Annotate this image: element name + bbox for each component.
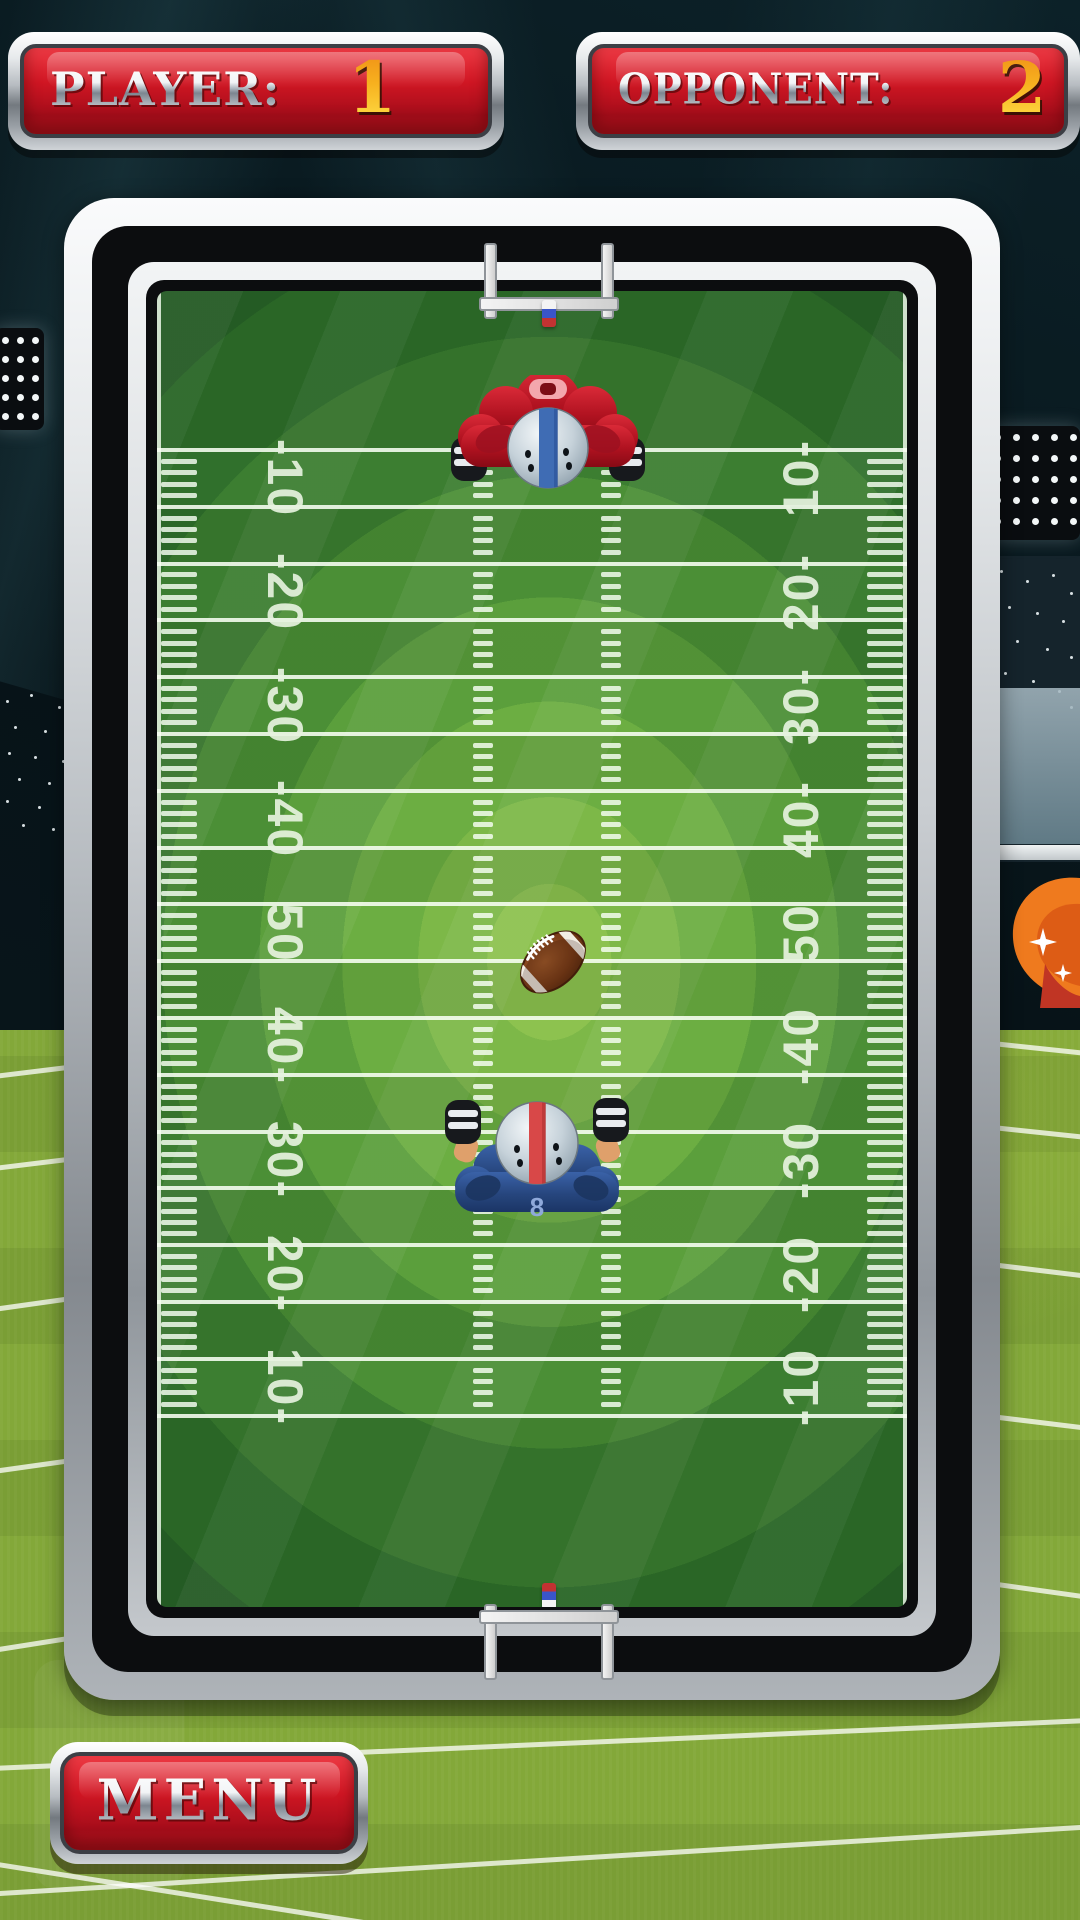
hash-mark xyxy=(867,595,903,600)
opponent-player-red xyxy=(443,375,653,507)
hash-mark xyxy=(161,697,197,702)
menu-button-label: MENU xyxy=(97,1767,322,1833)
hash-mark xyxy=(867,811,903,816)
yard-number-left: 50 xyxy=(256,903,314,963)
hash-mark xyxy=(867,1277,903,1282)
hash-mark xyxy=(601,516,621,521)
hash-mark xyxy=(473,1277,493,1282)
hash-mark xyxy=(867,936,903,941)
hash-mark xyxy=(473,1050,493,1055)
yard-number-left: -20 xyxy=(256,553,314,631)
hash-mark xyxy=(867,538,903,543)
player-label: PLAYER: xyxy=(50,62,280,116)
hash-mark xyxy=(473,834,493,839)
hash-mark xyxy=(473,1038,493,1043)
hash-mark xyxy=(161,686,197,691)
hash-mark xyxy=(601,981,621,986)
hash-mark xyxy=(161,1368,197,1373)
yard-number-left: -30 xyxy=(256,666,314,744)
hash-mark xyxy=(473,1334,493,1339)
hash-mark xyxy=(867,697,903,702)
hash-mark xyxy=(473,777,493,782)
hash-mark xyxy=(473,800,493,805)
hash-mark xyxy=(473,584,493,589)
hash-mark xyxy=(867,1368,903,1373)
hash-mark xyxy=(161,1231,197,1236)
hash-mark xyxy=(473,527,493,532)
hash-mark xyxy=(867,493,903,498)
player-score: 1 xyxy=(348,46,397,129)
hash-mark xyxy=(473,1379,493,1384)
hash-mark xyxy=(601,550,621,555)
hash-mark xyxy=(601,1288,621,1293)
hash-mark xyxy=(601,1231,621,1236)
hash-mark xyxy=(867,1311,903,1316)
yard-number-right: -30 xyxy=(772,1121,830,1199)
hash-mark xyxy=(161,550,197,555)
hash-mark xyxy=(161,1379,197,1384)
hash-mark xyxy=(473,1004,493,1009)
hash-mark xyxy=(601,1334,621,1339)
hash-mark xyxy=(601,1084,621,1089)
hash-mark xyxy=(473,766,493,771)
hash-mark xyxy=(601,538,621,543)
hash-mark xyxy=(161,607,197,612)
hash-mark xyxy=(161,993,197,998)
hash-mark xyxy=(867,470,903,475)
hash-mark xyxy=(161,572,197,577)
hash-mark xyxy=(867,1334,903,1339)
hash-mark xyxy=(473,936,493,941)
hash-mark xyxy=(473,538,493,543)
hash-mark xyxy=(161,947,197,952)
hash-mark xyxy=(867,981,903,986)
hash-mark xyxy=(867,1163,903,1168)
hash-mark xyxy=(867,1061,903,1066)
hash-mark xyxy=(473,981,493,986)
hash-mark xyxy=(473,822,493,827)
hash-mark xyxy=(473,709,493,714)
hash-mark xyxy=(161,720,197,725)
hash-mark xyxy=(161,1345,197,1350)
hash-mark xyxy=(473,913,493,918)
hash-mark xyxy=(867,663,903,668)
goal-pylon-bottom xyxy=(542,1583,556,1607)
glove-icon xyxy=(445,1100,481,1144)
hash-mark xyxy=(601,800,621,805)
yard-number-right: 20- xyxy=(772,553,830,631)
hash-mark xyxy=(867,1004,903,1009)
hash-mark xyxy=(161,1163,197,1168)
hash-mark xyxy=(867,641,903,646)
hash-mark xyxy=(601,1322,621,1327)
hash-mark xyxy=(867,879,903,884)
hash-mark xyxy=(601,663,621,668)
yard-number-left: 20- xyxy=(256,1234,314,1312)
hash-mark xyxy=(601,913,621,918)
jersey-number: 8 xyxy=(530,1192,544,1222)
hash-mark xyxy=(601,1004,621,1009)
hash-mark xyxy=(473,868,493,873)
hash-mark xyxy=(601,572,621,577)
hash-mark xyxy=(601,1390,621,1395)
hash-mark xyxy=(473,595,493,600)
hash-mark xyxy=(161,868,197,873)
hash-mark xyxy=(867,584,903,589)
hash-mark xyxy=(867,777,903,782)
opponent-score-panel: OPPONENT: 2 xyxy=(576,32,1080,150)
hash-mark xyxy=(473,1368,493,1373)
hash-mark xyxy=(867,1231,903,1236)
hash-mark xyxy=(473,1084,493,1089)
hash-mark xyxy=(867,1152,903,1157)
hash-mark xyxy=(161,1175,197,1180)
goal-pylon-top xyxy=(542,300,556,327)
hash-mark xyxy=(601,641,621,646)
hash-mark xyxy=(601,1027,621,1032)
hash-mark xyxy=(867,754,903,759)
hash-mark xyxy=(867,925,903,930)
hash-mark xyxy=(161,970,197,975)
hash-mark xyxy=(867,1084,903,1089)
hash-mark xyxy=(161,913,197,918)
hash-mark xyxy=(601,925,621,930)
hash-mark xyxy=(473,1311,493,1316)
hash-mark xyxy=(161,493,197,498)
hash-mark xyxy=(161,1118,197,1123)
hash-mark xyxy=(473,641,493,646)
yard-number-left: -10 xyxy=(256,439,314,517)
hash-mark xyxy=(867,1265,903,1270)
football-icon xyxy=(503,914,603,1010)
hash-mark xyxy=(161,1322,197,1327)
menu-button-core: MENU xyxy=(60,1752,358,1854)
hash-mark xyxy=(161,1311,197,1316)
hash-mark xyxy=(867,550,903,555)
hash-mark xyxy=(601,607,621,612)
hash-mark xyxy=(161,1140,197,1145)
hash-mark xyxy=(867,1175,903,1180)
hash-mark xyxy=(161,754,197,759)
hash-mark xyxy=(161,641,197,646)
hash-mark xyxy=(601,891,621,896)
player-score-panel: PLAYER: 1 xyxy=(8,32,504,150)
hash-mark xyxy=(161,936,197,941)
hash-mark xyxy=(601,1254,621,1259)
football-field[interactable]: -10-20-30-405040-30-20-10-10-20-30-40-50… xyxy=(157,291,907,1607)
hash-mark xyxy=(473,754,493,759)
hash-mark xyxy=(867,1095,903,1100)
yard-number-left: -40 xyxy=(256,780,314,858)
hash-mark xyxy=(473,947,493,952)
hash-mark xyxy=(161,1265,197,1270)
hash-mark xyxy=(161,652,197,657)
hash-mark xyxy=(601,697,621,702)
hash-mark xyxy=(161,1004,197,1009)
hash-mark xyxy=(867,572,903,577)
yard-number-right: -10 xyxy=(772,1348,830,1426)
hash-mark xyxy=(601,811,621,816)
hash-mark xyxy=(867,891,903,896)
hash-mark xyxy=(867,834,903,839)
hash-mark xyxy=(473,652,493,657)
hash-mark xyxy=(601,766,621,771)
hash-mark xyxy=(867,1345,903,1350)
hash-mark xyxy=(601,1265,621,1270)
hash-mark xyxy=(867,800,903,805)
hash-mark xyxy=(867,1140,903,1145)
hash-mark xyxy=(473,1288,493,1293)
hash-mark xyxy=(473,516,493,521)
hash-mark xyxy=(473,697,493,702)
hash-mark xyxy=(867,993,903,998)
hash-mark xyxy=(867,1322,903,1327)
hash-mark xyxy=(473,891,493,896)
hash-mark xyxy=(601,1379,621,1384)
crowd-flashes xyxy=(6,700,9,703)
hash-mark xyxy=(473,1322,493,1327)
hash-mark xyxy=(161,584,197,589)
hash-mark xyxy=(161,1390,197,1395)
hash-mark xyxy=(161,538,197,543)
hash-mark xyxy=(161,516,197,521)
hash-mark xyxy=(473,1265,493,1270)
hash-mark xyxy=(867,1106,903,1111)
hash-mark xyxy=(473,686,493,691)
hash-mark xyxy=(867,1197,903,1202)
hash-mark xyxy=(161,743,197,748)
hash-mark xyxy=(473,1231,493,1236)
hash-mark xyxy=(867,1209,903,1214)
hash-mark xyxy=(867,459,903,464)
hash-mark xyxy=(601,879,621,884)
hash-mark xyxy=(601,1345,621,1350)
hash-mark xyxy=(473,550,493,555)
hash-mark xyxy=(601,936,621,941)
hash-mark xyxy=(473,1254,493,1259)
hash-mark xyxy=(867,1402,903,1407)
hash-mark xyxy=(473,970,493,975)
hash-mark xyxy=(473,743,493,748)
hash-mark xyxy=(161,1038,197,1043)
floodlight-panel-icon xyxy=(0,328,44,430)
hash-mark xyxy=(161,856,197,861)
hash-mark xyxy=(161,1152,197,1157)
hash-mark xyxy=(601,834,621,839)
hash-mark xyxy=(867,1038,903,1043)
opponent-score-panel-core: OPPONENT: 2 xyxy=(588,44,1068,138)
hash-mark xyxy=(867,686,903,691)
hash-mark xyxy=(161,1277,197,1282)
hash-mark xyxy=(867,1288,903,1293)
hash-mark xyxy=(161,709,197,714)
yard-number-right: 10- xyxy=(772,439,830,517)
hash-mark xyxy=(601,947,621,952)
hash-mark xyxy=(867,1379,903,1384)
hash-mark xyxy=(867,868,903,873)
hash-mark xyxy=(473,1027,493,1032)
hash-mark xyxy=(473,879,493,884)
hash-mark xyxy=(161,1197,197,1202)
player-score-panel-core: PLAYER: 1 xyxy=(20,44,492,138)
hash-mark xyxy=(161,470,197,475)
hash-mark xyxy=(601,993,621,998)
hash-mark xyxy=(161,459,197,464)
playfield-frame: -10-20-30-405040-30-20-10-10-20-30-40-50… xyxy=(64,198,1000,1700)
game-screen: -10-20-30-405040-30-20-10-10-20-30-40-50… xyxy=(0,0,1080,1920)
hash-mark xyxy=(473,811,493,816)
hash-mark xyxy=(473,720,493,725)
hash-mark xyxy=(601,720,621,725)
hash-mark xyxy=(867,947,903,952)
hash-mark xyxy=(161,1220,197,1225)
hash-mark xyxy=(161,879,197,884)
hash-mark xyxy=(867,629,903,634)
hash-mark xyxy=(473,1390,493,1395)
hash-mark xyxy=(867,1390,903,1395)
hash-mark xyxy=(601,595,621,600)
hash-mark xyxy=(161,1334,197,1339)
hash-mark xyxy=(601,1050,621,1055)
hash-mark xyxy=(601,686,621,691)
hash-mark xyxy=(867,1027,903,1032)
stadium-window xyxy=(1000,688,1080,844)
hash-mark xyxy=(161,482,197,487)
hash-mark xyxy=(601,868,621,873)
yard-number-right: 40- xyxy=(772,780,830,858)
hash-mark xyxy=(601,1038,621,1043)
player-blue[interactable]: 8 xyxy=(437,1092,637,1222)
hash-mark xyxy=(867,607,903,612)
hash-mark xyxy=(161,811,197,816)
hash-mark xyxy=(601,652,621,657)
hash-mark xyxy=(867,720,903,725)
hash-mark xyxy=(601,1311,621,1316)
hash-mark xyxy=(867,1254,903,1259)
hash-mark xyxy=(161,1061,197,1066)
yard-number-left: 30- xyxy=(256,1121,314,1199)
hash-mark xyxy=(161,1106,197,1111)
hash-mark xyxy=(601,1402,621,1407)
hash-mark xyxy=(867,709,903,714)
hash-mark xyxy=(473,1402,493,1407)
hash-mark xyxy=(867,1220,903,1225)
floodlight-panel-icon xyxy=(986,426,1080,540)
hash-mark xyxy=(161,1402,197,1407)
hash-mark xyxy=(473,925,493,930)
hash-mark xyxy=(473,629,493,634)
hash-mark xyxy=(161,834,197,839)
hash-mark xyxy=(601,970,621,975)
crowd-flashes xyxy=(1000,570,1003,573)
hash-mark xyxy=(473,663,493,668)
hash-mark xyxy=(161,800,197,805)
hash-mark xyxy=(161,766,197,771)
hash-mark xyxy=(161,629,197,634)
menu-button[interactable]: MENU xyxy=(50,1742,368,1864)
hash-mark xyxy=(601,822,621,827)
hash-mark xyxy=(867,743,903,748)
opponent-label: OPPONENT: xyxy=(618,65,893,114)
hash-mark xyxy=(161,1027,197,1032)
hash-mark xyxy=(867,1118,903,1123)
hash-mark xyxy=(601,777,621,782)
hash-mark xyxy=(601,754,621,759)
hash-mark xyxy=(867,822,903,827)
hash-mark xyxy=(161,527,197,532)
hash-mark xyxy=(161,777,197,782)
yard-number-right: 30- xyxy=(772,666,830,744)
hash-mark xyxy=(473,993,493,998)
opponent-score: 2 xyxy=(998,46,1047,129)
hash-mark xyxy=(601,743,621,748)
hash-mark xyxy=(161,981,197,986)
hash-mark xyxy=(161,1050,197,1055)
hash-mark xyxy=(161,663,197,668)
hash-mark xyxy=(601,709,621,714)
hash-mark xyxy=(473,856,493,861)
yard-number-right: -20 xyxy=(772,1234,830,1312)
hash-mark xyxy=(601,856,621,861)
hash-mark xyxy=(867,1050,903,1055)
hash-mark xyxy=(601,1368,621,1373)
hash-mark xyxy=(867,527,903,532)
hash-mark xyxy=(161,891,197,896)
hash-mark xyxy=(473,572,493,577)
hash-mark xyxy=(601,584,621,589)
hash-mark xyxy=(161,1288,197,1293)
hash-mark xyxy=(473,607,493,612)
glove-icon xyxy=(593,1098,629,1142)
hash-mark xyxy=(601,1277,621,1282)
hash-mark xyxy=(867,970,903,975)
hash-mark xyxy=(161,1095,197,1100)
yard-number-left: 10- xyxy=(256,1348,314,1426)
goal-crossbar-bottom xyxy=(479,1610,619,1624)
yard-number-left: 40- xyxy=(256,1007,314,1085)
hash-mark xyxy=(473,1061,493,1066)
hash-mark xyxy=(601,1061,621,1066)
hash-mark xyxy=(161,925,197,930)
hash-mark xyxy=(867,766,903,771)
hash-mark xyxy=(161,822,197,827)
hash-mark xyxy=(161,1209,197,1214)
hash-mark xyxy=(161,1084,197,1089)
hash-mark xyxy=(867,482,903,487)
yard-number-right: -40 xyxy=(772,1007,830,1085)
hash-mark xyxy=(867,516,903,521)
hash-mark xyxy=(161,1254,197,1259)
yard-number-right: 50 xyxy=(772,903,830,963)
hash-mark xyxy=(601,527,621,532)
hash-mark xyxy=(867,856,903,861)
hash-mark xyxy=(161,595,197,600)
hash-mark xyxy=(473,1345,493,1350)
hash-mark xyxy=(601,629,621,634)
hash-mark xyxy=(867,652,903,657)
hash-mark xyxy=(867,913,903,918)
